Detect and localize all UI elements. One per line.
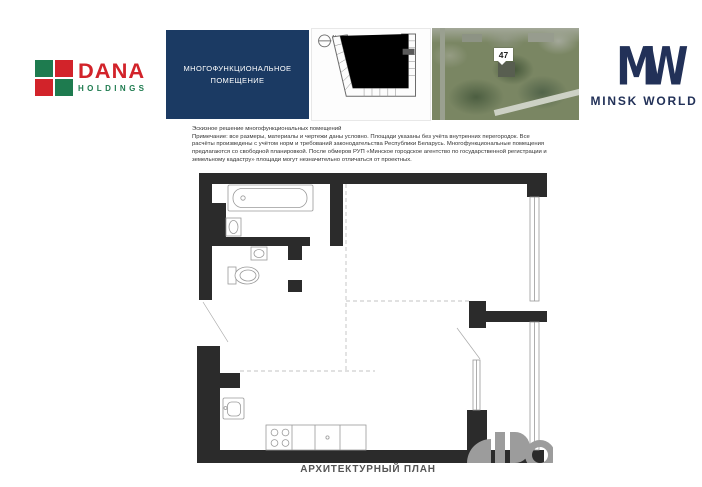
dana-square-green-br (55, 79, 73, 96)
site-plan-drawing: N (312, 29, 430, 120)
building-marker: 47 (494, 48, 513, 61)
dana-square-red-tr (55, 60, 73, 77)
kitchen-counter (266, 425, 366, 450)
appliance-knob (326, 436, 329, 439)
wc-sink (251, 247, 267, 260)
bathtub (228, 185, 313, 211)
dana-brand-text: DANA (78, 63, 145, 82)
entrance-door-swing (203, 302, 228, 342)
disclaimer-body: Примечание: все размеры, материалы и чер… (192, 134, 547, 163)
dana-holdings-logo: DANA HOLDINGS (35, 52, 165, 104)
room-door-swing (457, 328, 480, 359)
zone-lines (240, 184, 469, 371)
dana-subbrand-text: HOLDINGS (78, 84, 147, 93)
unit-type-line1: МНОГОФУНКЦИОНАЛЬНОЕ (184, 63, 292, 75)
floor-plan (183, 170, 553, 470)
aerial-building (528, 33, 554, 42)
floor-plan-drawing (183, 170, 553, 470)
aerial-road-vertical (440, 28, 445, 120)
site-plan-card: N (311, 28, 431, 121)
dana-text: DANA HOLDINGS (78, 63, 147, 93)
fixtures (223, 185, 366, 450)
minsk-world-wordmark: MINSK WORLD (590, 94, 697, 108)
highlighted-unit (403, 49, 415, 55)
door-swings (203, 302, 480, 359)
aerial-building (462, 34, 482, 42)
dana-square-green-tl (35, 60, 53, 77)
toilet (228, 267, 259, 284)
aerial-photo: 47 (432, 28, 579, 120)
unit-type-card: МНОГОФУНКЦИОНАЛЬНОЕ ПОМЕЩЕНИЕ (166, 30, 309, 119)
bathroom-sink (226, 218, 241, 236)
mw-monogram-icon: M W (616, 36, 672, 90)
aerial-road-diagonal (494, 86, 579, 116)
unit-type-line2: ПОМЕЩЕНИЕ (211, 75, 265, 87)
svg-text:W: W (644, 38, 689, 98)
plan-caption: АРХИТЕКТУРНЫЙ ПЛАН (183, 464, 553, 475)
page: DANA HOLDINGS МНОГОФУНКЦИОНАЛЬНОЕ ПОМЕЩЕ… (0, 0, 702, 487)
disclaimer-title: Эскизное решение многофункциональных пом… (192, 126, 552, 134)
kitchen-sink (223, 398, 244, 419)
minsk-world-logo: M W MINSK WORLD (588, 36, 700, 114)
walls (197, 173, 547, 463)
dana-square-red-bl (35, 79, 53, 96)
disclaimer: Эскизное решение многофункциональных пом… (192, 126, 552, 164)
dana-squares-icon (35, 60, 73, 96)
